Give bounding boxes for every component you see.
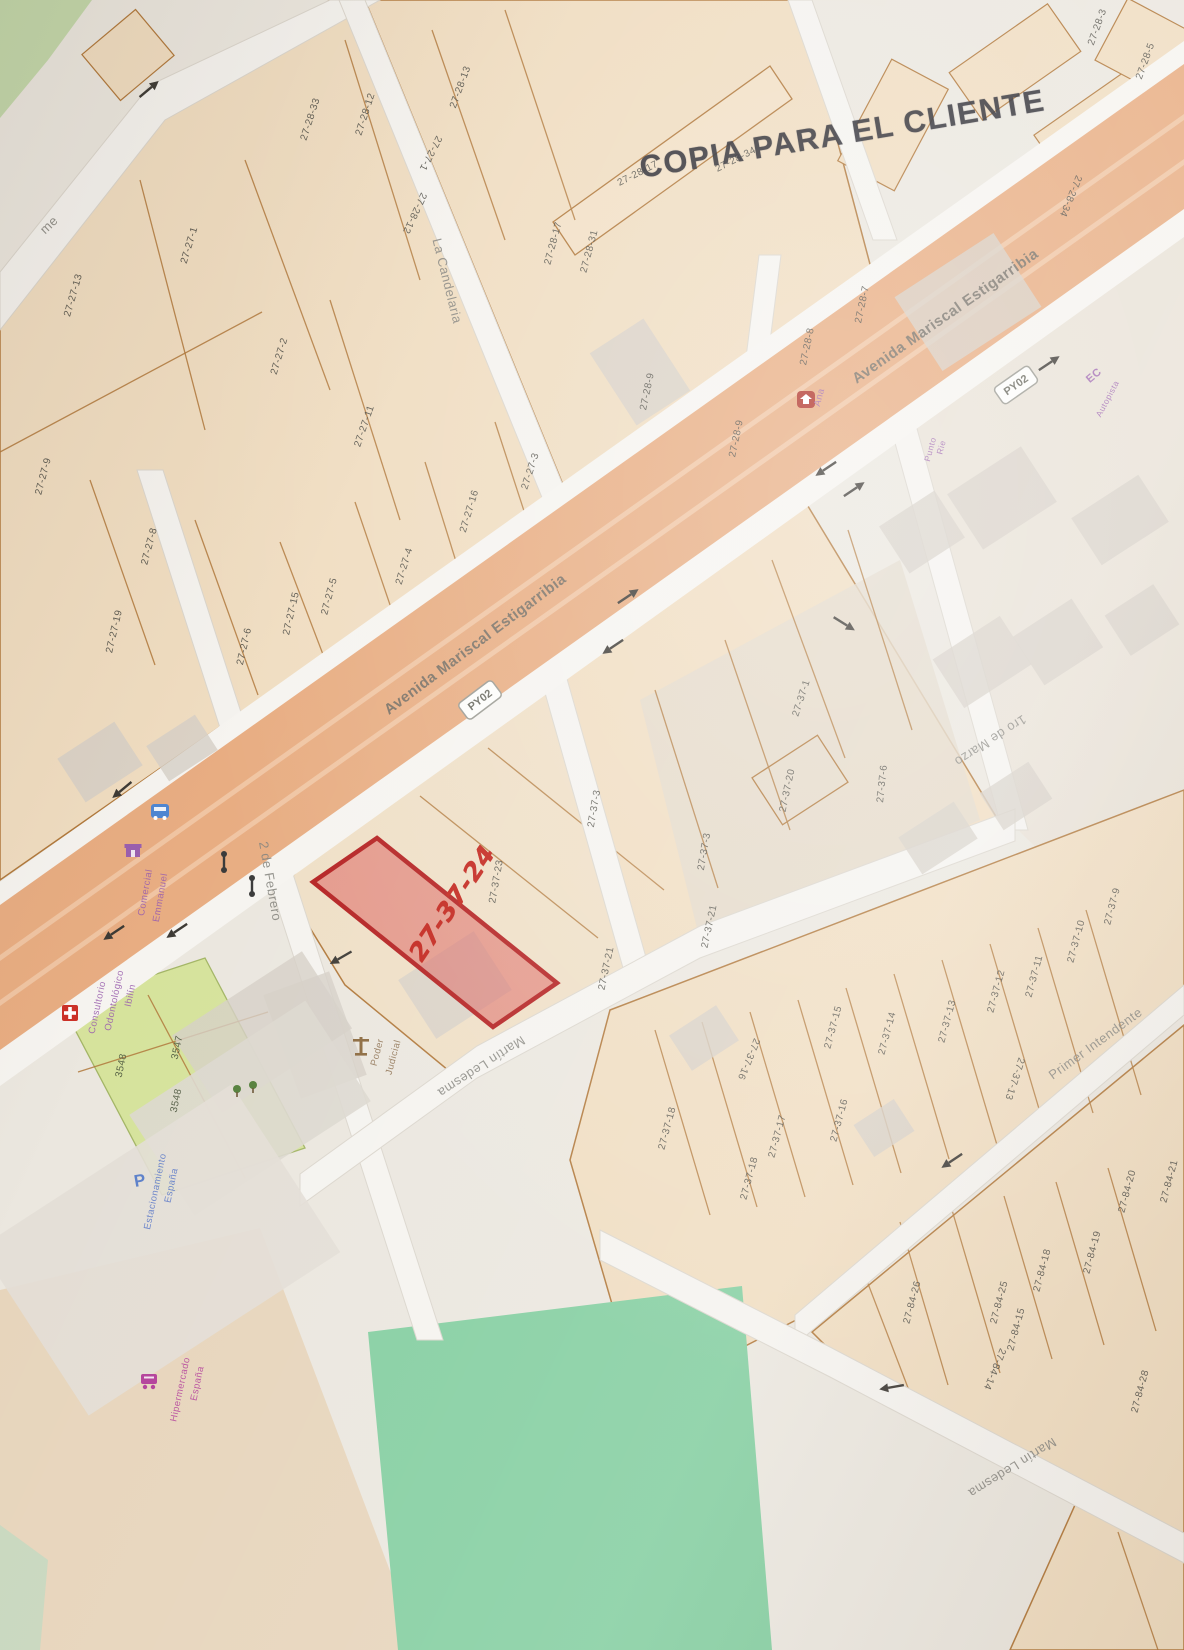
sports-field bbox=[368, 1286, 772, 1650]
map-photo: PY02PY02meLa Candelaria2 de FebreroMartí… bbox=[0, 0, 1184, 1650]
poi-label: Judicial bbox=[384, 1039, 404, 1076]
poi-label: Poder bbox=[369, 1037, 387, 1067]
direction-arrow-icon bbox=[841, 478, 867, 499]
bus-icon bbox=[151, 804, 169, 820]
green-corner bbox=[0, 0, 92, 118]
shop-icon bbox=[125, 844, 142, 857]
medical-icon bbox=[62, 1005, 78, 1021]
cadastral-map: PY02PY02meLa Candelaria2 de FebreroMartí… bbox=[0, 0, 1184, 1650]
